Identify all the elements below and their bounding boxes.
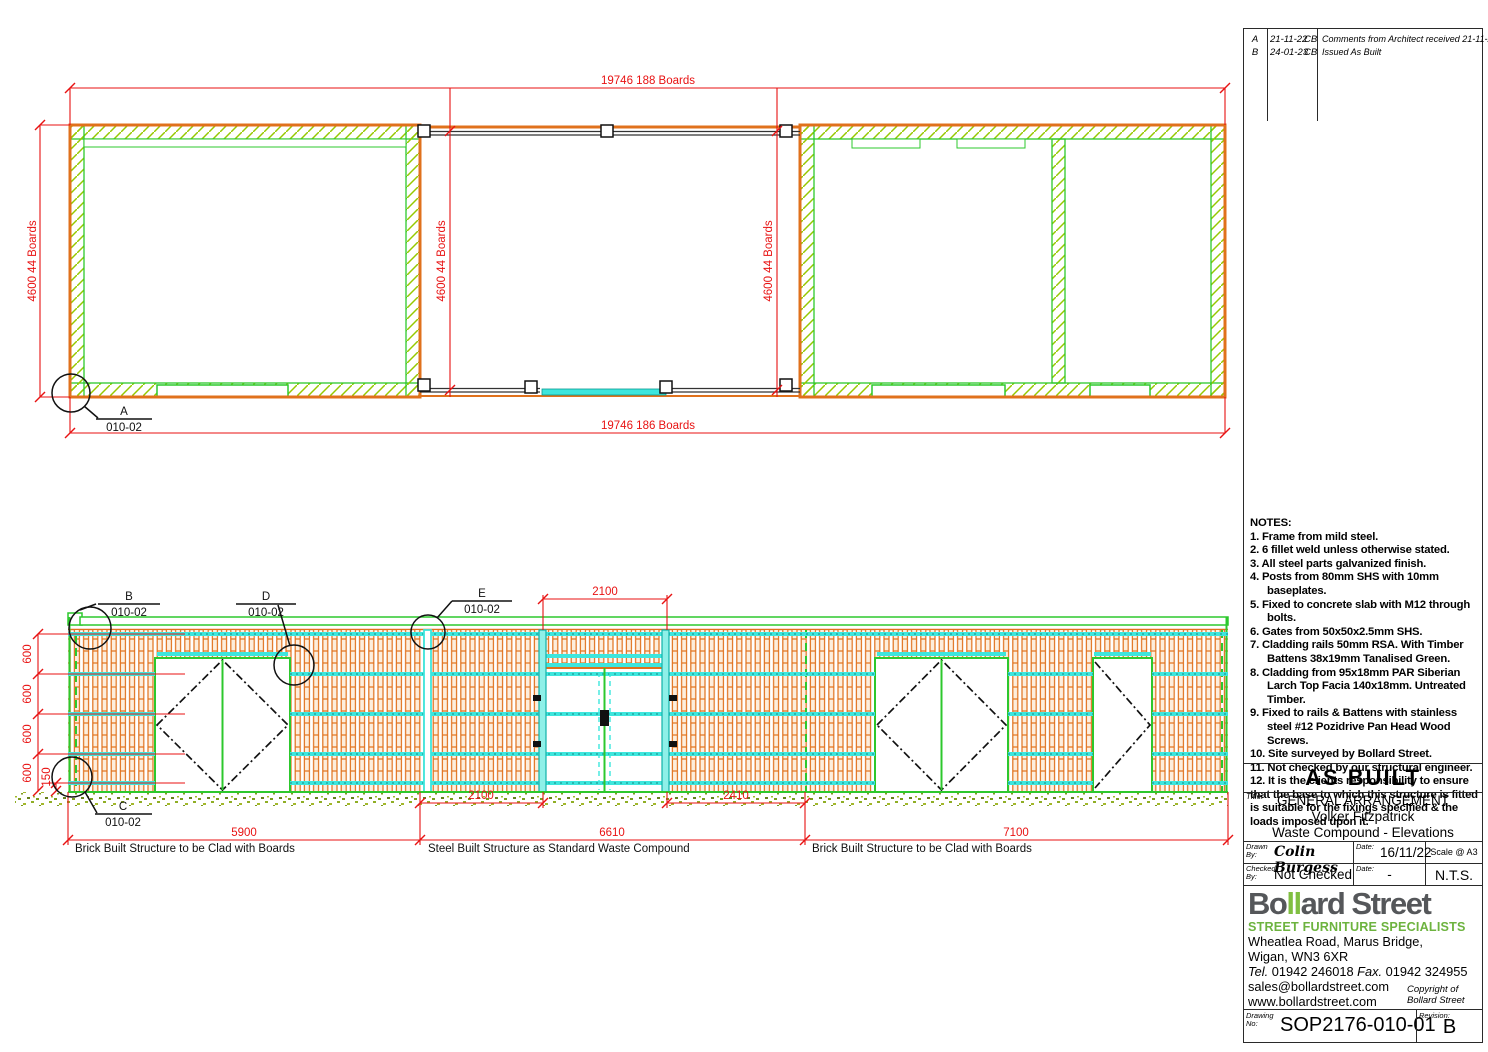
callout-c-label: C [119, 801, 127, 813]
scale-value: N.T.S. [1426, 867, 1482, 883]
label-steel-mid: Steel Built Structure as Standard Waste … [428, 843, 690, 855]
steel-post [424, 630, 431, 792]
revision-date: 24-01-23 [1270, 47, 1308, 58]
checked-by-cell: Checked By: Not Checked [1244, 864, 1354, 886]
fax-number: 01942 324955 [1386, 964, 1468, 979]
title-section: Title: GENERAL ARRANGEMENT Volker Fitzpa… [1244, 791, 1482, 841]
date2-cell: Date: - [1354, 864, 1426, 886]
company-tagline: STREET FURNITURE SPECIALISTS [1248, 920, 1478, 934]
logo-text: Bo [1248, 886, 1286, 921]
note-item: 4. Posts from 80mm SHS with 10mm basepla… [1250, 571, 1480, 598]
dim-6610: 6610 [599, 827, 625, 839]
plan-dim-bottom: 19746 186 Boards [601, 420, 695, 432]
title-label: Title: [1246, 792, 1263, 801]
callout-b-label: B [125, 591, 133, 603]
copyright-note: Copyright of Bollard Street [1407, 984, 1479, 1006]
plan-right-brick-block [800, 125, 1225, 397]
drawing-title-line2: Volker Fitzpatrick [1244, 809, 1482, 825]
address-line1: Wheatlea Road, Marus Bridge, [1248, 934, 1478, 949]
copyright-line1: Copyright of [1407, 984, 1479, 995]
date-value: 16/11/22 [1380, 845, 1432, 860]
right-door-opening-2 [1093, 658, 1152, 792]
tel-label: Tel. [1248, 964, 1268, 979]
plan-dim-left: 4600 44 Boards [27, 220, 39, 301]
drawn-by-label: Drawn By: [1246, 843, 1276, 859]
note-item: 9. Fixed to rails & Battens with stainle… [1250, 707, 1480, 748]
as-built-stamp: AS BUILT [1244, 763, 1482, 793]
logo-text-green: ll [1286, 886, 1300, 921]
callout-e-label: E [478, 588, 486, 600]
meta-grid: Drawn By: Colin Burgess Date: 16/11/22 S… [1244, 841, 1482, 885]
revision-cell-value: B [1417, 1016, 1482, 1039]
callout-c-ref: 010-02 [105, 817, 141, 829]
revision-by: CB [1304, 47, 1317, 58]
drawing-title-line1: GENERAL ARRANGEMENT [1244, 793, 1482, 809]
dim-gate-top: 2100 [592, 586, 618, 598]
plan-left-brick-block [70, 125, 420, 397]
callout-a-ref: 010-02 [106, 422, 142, 434]
ground-hatch [15, 792, 1228, 806]
plan-steel-posts [418, 125, 792, 393]
revision-desc: Comments from Architect received 21-11-2… [1322, 34, 1488, 44]
date-cell: Date: 16/11/22 [1354, 842, 1426, 864]
plan-dim-mid-left: 4600 44 Boards [436, 220, 448, 301]
dim-7100: 7100 [1003, 827, 1029, 839]
dim-5900: 5900 [231, 827, 257, 839]
plan-dim-top: 19746 188 Boards [601, 75, 695, 87]
nts-cell: N.T.S. [1426, 864, 1482, 886]
note-item: 7. Cladding rails 50mm RSA. With Timber … [1250, 639, 1480, 666]
address-line2: Wigan, WN3 6XR [1248, 949, 1478, 964]
phone-line: Tel. 01942 246018 Fax. 01942 324955 [1248, 964, 1478, 979]
callout-a-label: A [120, 406, 128, 418]
dim-2410: 2410 [723, 790, 749, 802]
callout-b-ref: 010-02 [111, 607, 147, 619]
gate-latch [600, 710, 609, 726]
title-block-panel: A 21-11-22 CB Comments from Architect re… [1243, 28, 1483, 1043]
revision-desc: Issued As Built [1322, 47, 1381, 57]
dim-150: 150 [41, 767, 53, 786]
note-item: 6. Gates from 50x50x2.5mm SHS. [1250, 626, 1480, 640]
fax-label: Fax. [1357, 964, 1382, 979]
plan-gate-bar [542, 389, 666, 395]
note-item: 3. All steel parts galvanized finish. [1250, 558, 1480, 572]
date2-value: - [1354, 867, 1425, 882]
note-item: 2. 6 fillet weld unless otherwise stated… [1250, 544, 1480, 558]
dim-600-2: 600 [22, 684, 34, 703]
company-block: Bollard Street STREET FURNITURE SPECIALI… [1244, 885, 1482, 1009]
gate-post-left [539, 630, 546, 792]
drawing-number-label: Drawing No: [1246, 1012, 1280, 1028]
drawing-number-value: SOP2176-010-01 [1280, 1014, 1436, 1037]
drawing-title-line3: Waste Compound - Elevations [1244, 825, 1482, 841]
revision-date: 21-11-22 [1270, 34, 1307, 45]
scale-cell: Scale @ A3 [1426, 842, 1482, 864]
label-brick-right: Brick Built Structure to be Clad with Bo… [812, 843, 1032, 855]
dim-2100: 2100 [468, 790, 494, 802]
plan-dim-mid-right: 4600 44 Boards [763, 220, 775, 301]
note-item: 10. Site surveyed by Bollard Street. [1250, 748, 1480, 762]
revision-by: CB [1304, 34, 1317, 45]
scale-label: Scale @ A3 [1426, 847, 1482, 857]
tel-number: 01942 246018 [1272, 964, 1354, 979]
revision-table-divider [1267, 29, 1268, 121]
label-brick-left: Brick Built Structure to be Clad with Bo… [75, 843, 295, 855]
drawing-sheet: 19746 188 Boards 19746 186 Boards 4600 4… [0, 0, 1488, 1052]
logo-text: ard Street [1301, 886, 1431, 921]
copyright-line2: Bollard Street [1407, 995, 1479, 1006]
dim-600-1: 600 [22, 644, 34, 663]
revision-letter: A [1244, 34, 1266, 45]
note-item: 8. Cladding from 95x18mm PAR Siberian La… [1250, 667, 1480, 708]
note-item: 1. Frame from mild steel. [1250, 531, 1480, 545]
plan-view: 19746 188 Boards 19746 186 Boards 4600 4… [0, 0, 1240, 470]
dim-600-3: 600 [22, 724, 34, 743]
callout-e-ref: 010-02 [464, 604, 500, 616]
checked-by-label: Checked By: [1246, 865, 1276, 881]
plan-steel-section [418, 125, 800, 396]
revision-cell: Revision: B [1416, 1010, 1482, 1042]
note-item: 5. Fixed to concrete slab with M12 throu… [1250, 599, 1480, 626]
notes-heading: NOTES: [1250, 517, 1480, 531]
elevation-view: 600 600 600 600 150 2100 2100 2410 5900 … [0, 555, 1240, 860]
drawn-by-cell: Drawn By: Colin Burgess [1244, 842, 1354, 864]
callout-d-label: D [262, 591, 270, 603]
company-logo: Bollard Street [1248, 887, 1478, 920]
callout-d-ref: 010-02 [248, 607, 284, 619]
dim-600-4: 600 [22, 763, 34, 782]
gate-post-right [662, 630, 669, 792]
checked-by-value: Not Checked [1274, 867, 1352, 882]
drawing-number-row: Drawing No: SOP2176-010-01 Revision: B [1244, 1009, 1482, 1042]
revision-letter: B [1244, 47, 1266, 58]
